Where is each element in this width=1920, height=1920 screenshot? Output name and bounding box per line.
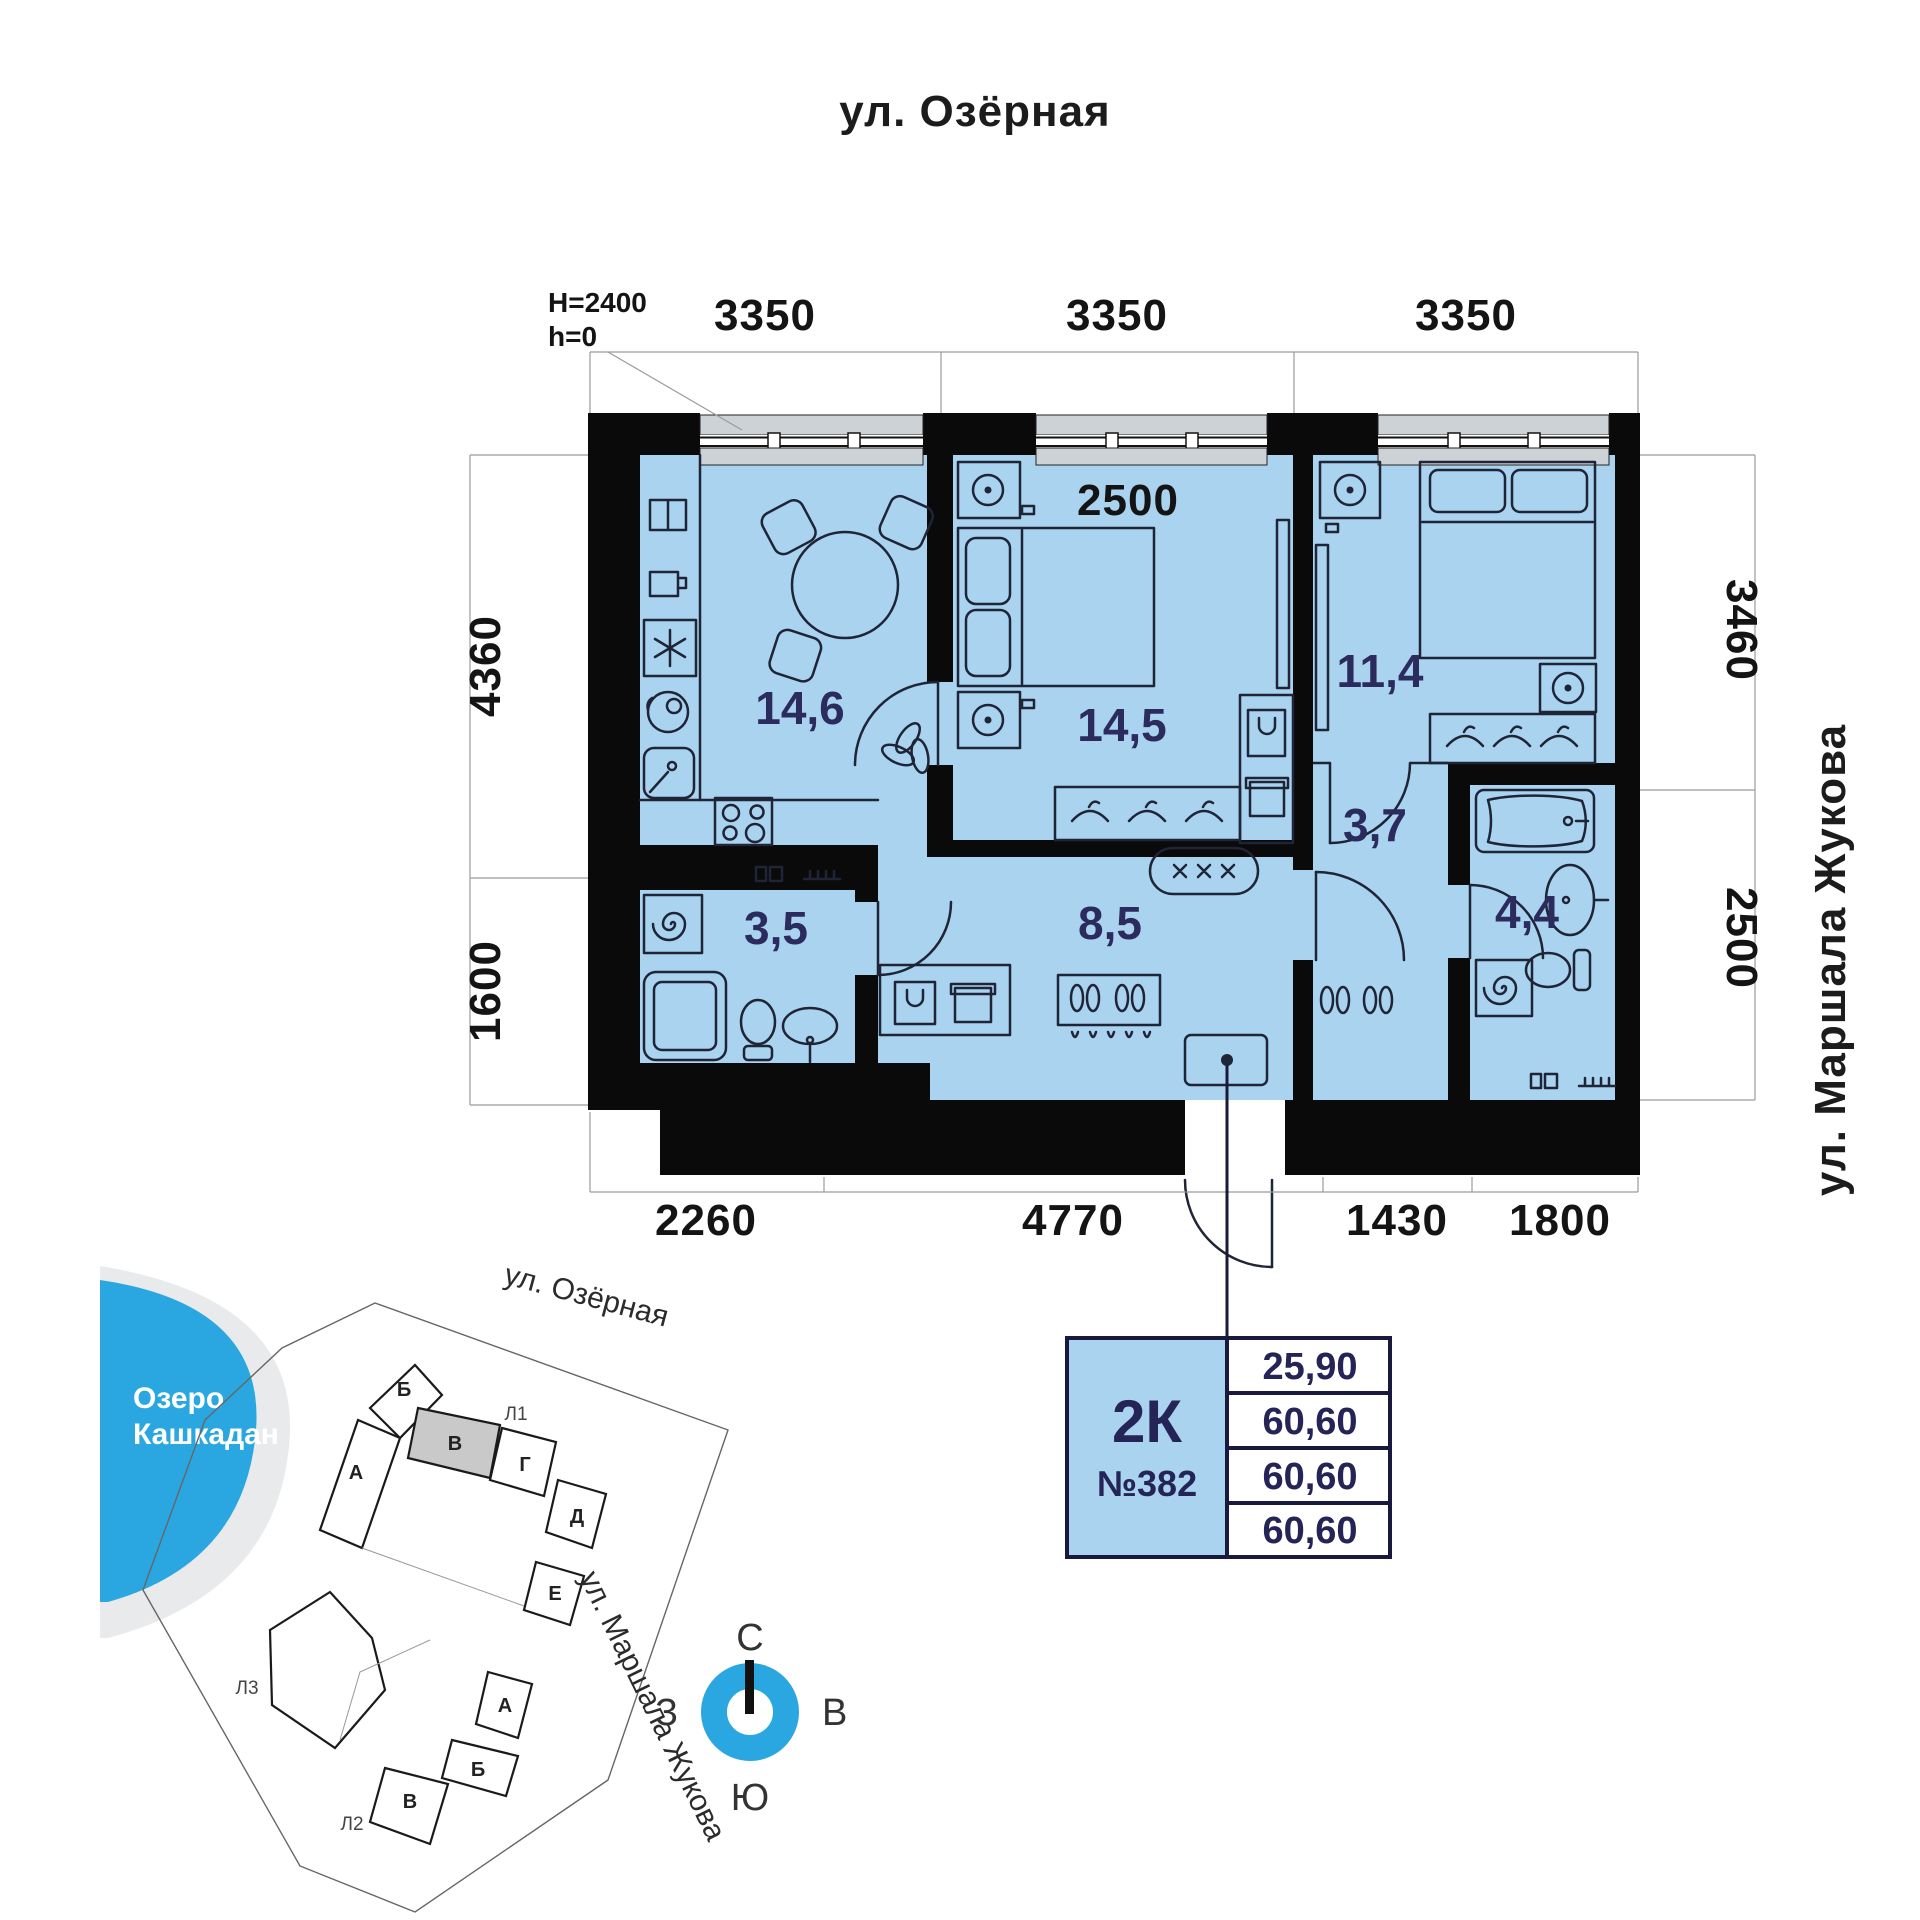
card-value-2: 60,60 bbox=[1262, 1401, 1357, 1443]
windows bbox=[700, 415, 1609, 465]
label-l1-d: Д bbox=[570, 1506, 584, 1528]
compass-west: З bbox=[655, 1692, 678, 1734]
card-type-label: 2К bbox=[1112, 1388, 1182, 1455]
doorway-bedroom1 bbox=[927, 682, 953, 765]
area-corridor: 3,7 bbox=[1343, 799, 1407, 851]
label-l2: Л2 bbox=[340, 1814, 363, 1835]
compass-north: С bbox=[736, 1617, 763, 1659]
street-label-right: ул. Маршала Жукова bbox=[1806, 724, 1855, 1196]
courtyard-line bbox=[362, 1548, 524, 1606]
label-l1-g: Г bbox=[519, 1454, 530, 1476]
street-label-top: ул. Озёрная bbox=[839, 87, 1110, 136]
compass-east: В bbox=[822, 1692, 847, 1734]
apartment-card[interactable]: 2К №382 25,90 60,60 60,60 60,60 bbox=[1067, 1338, 1390, 1557]
plan-canvas: ул. Озёрная bbox=[0, 0, 1920, 1920]
label-l2-a: А bbox=[498, 1695, 512, 1717]
room-kitchen[interactable] bbox=[640, 455, 927, 845]
compass-needle-icon bbox=[745, 1660, 754, 1714]
window-bedroom2 bbox=[1378, 415, 1609, 465]
dim-bottom-1: 2260 bbox=[655, 1196, 757, 1245]
dim-top-3: 3350 bbox=[1415, 291, 1517, 340]
dim-top-1: 3350 bbox=[714, 291, 816, 340]
dim-bottom-3: 1430 bbox=[1346, 1196, 1448, 1245]
building-l3 bbox=[270, 1592, 385, 1748]
label-l2-b: Б bbox=[471, 1759, 485, 1781]
floorplan-page: ул. Озёрная bbox=[0, 0, 1920, 1920]
section-l1-a bbox=[320, 1420, 400, 1548]
dim-bottom-2: 4770 bbox=[1022, 1196, 1124, 1245]
dim-inner: 2500 bbox=[1077, 476, 1179, 525]
doorway-shower bbox=[855, 902, 878, 975]
area-bedroom1: 14,5 bbox=[1077, 699, 1167, 751]
dim-bottom-4: 1800 bbox=[1509, 1196, 1611, 1245]
dim-left-1: 4360 bbox=[461, 615, 510, 717]
card-value-4: 60,60 bbox=[1262, 1510, 1357, 1552]
lake-label-1: Озеро bbox=[133, 1382, 224, 1415]
lake-label-2: Кашкадан bbox=[133, 1418, 279, 1451]
compass-south: Ю bbox=[731, 1777, 769, 1819]
area-bedroom2: 11,4 bbox=[1337, 645, 1424, 697]
label-l1-a: А bbox=[349, 1462, 363, 1484]
label-l2-v: В bbox=[403, 1791, 417, 1813]
window-bedroom1 bbox=[1036, 415, 1267, 465]
height-note-1: H=2400 bbox=[548, 287, 647, 318]
dim-right-2: 2500 bbox=[1717, 887, 1766, 989]
area-shower: 3,5 bbox=[744, 902, 808, 954]
label-l1: Л1 bbox=[504, 1404, 527, 1425]
room-hall-channel bbox=[878, 845, 927, 1100]
dim-left-2: 1600 bbox=[461, 940, 510, 1042]
card-value-3: 60,60 bbox=[1262, 1456, 1357, 1498]
window-kitchen bbox=[700, 415, 923, 465]
card-value-1: 25,90 bbox=[1262, 1346, 1357, 1388]
area-kitchen: 14,6 bbox=[755, 682, 845, 734]
dim-right-1: 3460 bbox=[1717, 579, 1766, 681]
label-l3: Л3 bbox=[235, 1678, 258, 1699]
dim-top-2: 3350 bbox=[1066, 291, 1168, 340]
area-hall: 8,5 bbox=[1078, 897, 1142, 949]
label-l1-e: Е bbox=[548, 1583, 561, 1605]
card-number-label: №382 bbox=[1097, 1463, 1197, 1504]
doorway-bathroom bbox=[1448, 885, 1470, 958]
height-note-2: h=0 bbox=[548, 321, 597, 352]
doorway-corridor bbox=[1293, 870, 1313, 960]
area-bathroom: 4,4 bbox=[1495, 886, 1559, 938]
site-street-top: ул. Озёрная bbox=[501, 1258, 672, 1333]
building-l1 bbox=[320, 1365, 606, 1625]
label-l1-v: В bbox=[448, 1433, 462, 1455]
label-l1-b: Б bbox=[397, 1379, 411, 1401]
site-plan: Озеро Кашкадан А Б В Л1 Г Д Е Л3 А bbox=[100, 1258, 732, 1912]
